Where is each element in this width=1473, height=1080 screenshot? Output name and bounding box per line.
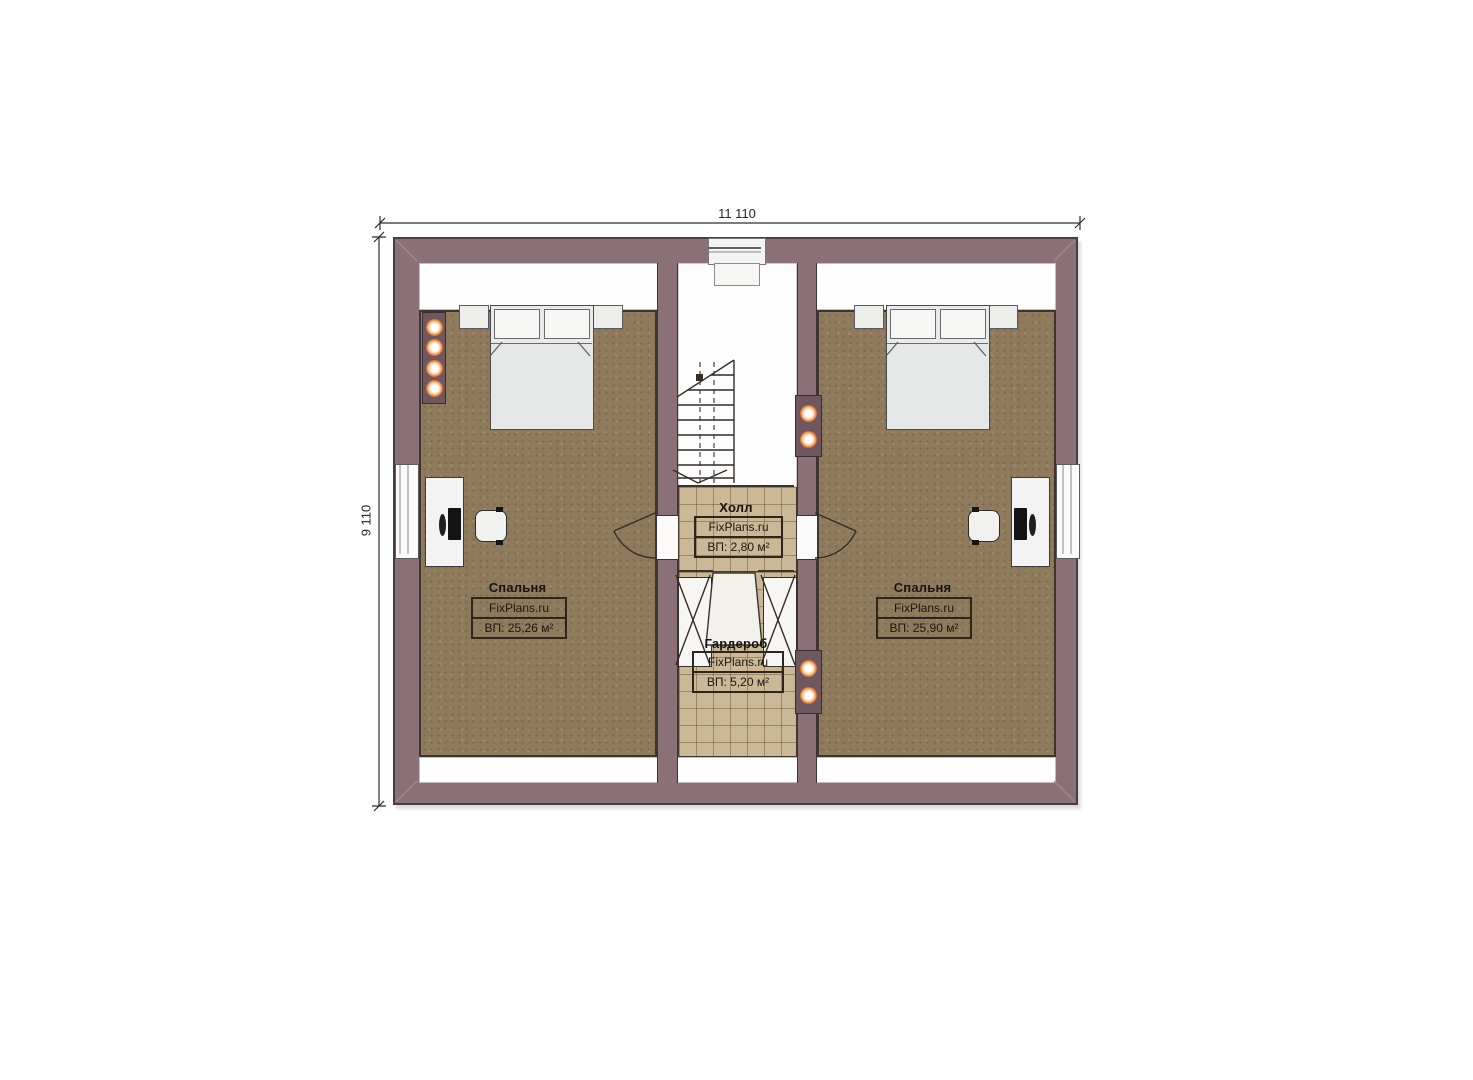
dimension-value-left: 9 110 bbox=[359, 491, 374, 551]
spotlight-icon bbox=[800, 687, 817, 704]
bed bbox=[886, 305, 990, 430]
desk-lamp bbox=[1029, 514, 1036, 536]
bed bbox=[490, 305, 594, 430]
room-name-bedroom-left: Спальня bbox=[455, 580, 580, 595]
pillow bbox=[494, 309, 540, 339]
nightstand bbox=[593, 305, 623, 329]
window-top-wall bbox=[708, 238, 766, 265]
nightstand bbox=[988, 305, 1018, 329]
spotlight-icon bbox=[800, 431, 817, 448]
door-opening-bedroom-left bbox=[657, 515, 678, 560]
room-area-value: ВП: 25,90 м² bbox=[878, 617, 970, 637]
monitor bbox=[1014, 508, 1027, 540]
watermark-text: FixPlans.ru bbox=[878, 599, 970, 617]
nightstand bbox=[459, 305, 489, 329]
monitor bbox=[448, 508, 461, 540]
wall-lamp-panel bbox=[795, 395, 822, 457]
pillow bbox=[544, 309, 590, 339]
window-left-wall bbox=[395, 464, 419, 559]
office-chair bbox=[968, 510, 1000, 542]
wall-lamp-panel bbox=[795, 650, 822, 714]
floorplan-canvas: 11 110 9 110 Спальня FixPlans.ru ВП: 25,… bbox=[0, 0, 1473, 1080]
room-label-box: FixPlans.ru ВП: 5,20 м² bbox=[692, 651, 784, 693]
watermark-text: FixPlans.ru bbox=[696, 518, 781, 536]
spotlight-strip bbox=[422, 312, 446, 404]
pillow bbox=[940, 309, 986, 339]
room-name-bedroom-right: Спальня bbox=[860, 580, 985, 595]
window-top-sill bbox=[714, 263, 760, 286]
dimension-line-left bbox=[372, 232, 386, 811]
nightstand bbox=[854, 305, 884, 329]
window-right-wall bbox=[1056, 464, 1080, 559]
room-label-box: FixPlans.ru ВП: 25,26 м² bbox=[471, 597, 567, 639]
room-name-wardrobe: Гардероб bbox=[675, 636, 797, 651]
kneewall-band-bottom bbox=[419, 757, 1056, 783]
room-name-hall: Холл bbox=[675, 500, 797, 515]
watermark-text: FixPlans.ru bbox=[694, 653, 782, 671]
watermark-text: FixPlans.ru bbox=[473, 599, 565, 617]
spotlight-icon bbox=[800, 405, 817, 422]
blanket bbox=[491, 343, 592, 428]
stairwell-floor bbox=[678, 263, 797, 487]
spotlight-icon bbox=[426, 380, 443, 397]
office-chair bbox=[475, 510, 507, 542]
room-area-value: ВП: 2,80 м² bbox=[696, 536, 781, 556]
room-area-value: ВП: 5,20 м² bbox=[694, 671, 782, 691]
spotlight-icon bbox=[426, 339, 443, 356]
desk-lamp bbox=[439, 514, 446, 536]
room-label-box: FixPlans.ru ВП: 25,90 м² bbox=[876, 597, 972, 639]
spotlight-icon bbox=[426, 319, 443, 336]
dimension-value-top: 11 110 bbox=[687, 206, 787, 221]
spotlight-icon bbox=[800, 660, 817, 677]
room-label-box: FixPlans.ru ВП: 2,80 м² bbox=[694, 516, 783, 558]
spotlight-icon bbox=[426, 360, 443, 377]
room-area-value: ВП: 25,26 м² bbox=[473, 617, 565, 637]
pillow bbox=[890, 309, 936, 339]
door-opening-bedroom-right bbox=[797, 515, 817, 560]
blanket bbox=[887, 343, 988, 428]
